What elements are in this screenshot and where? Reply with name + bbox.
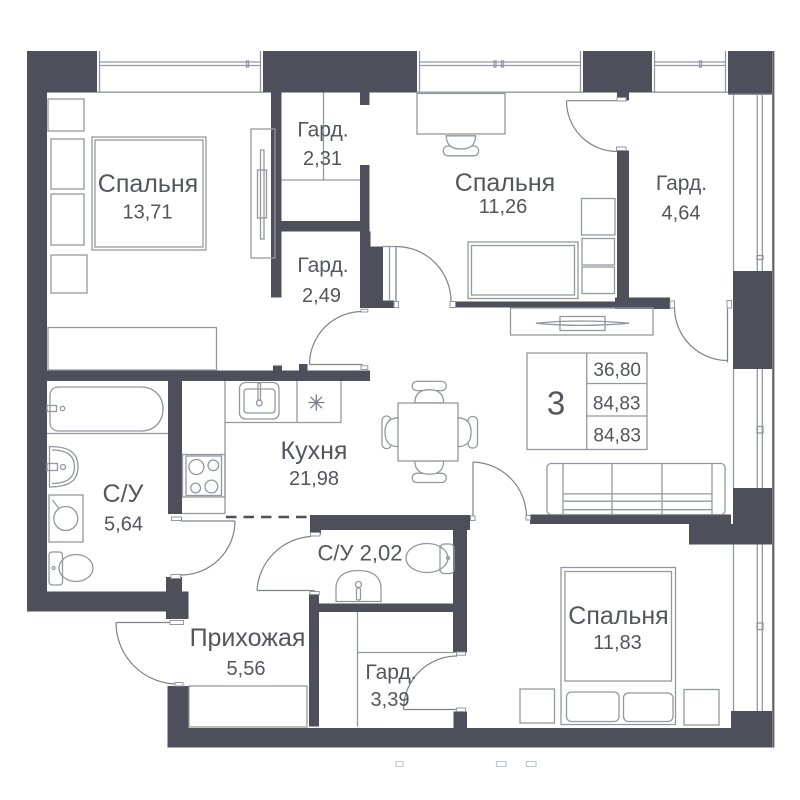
svg-text:5,56: 5,56 [227, 658, 266, 680]
svg-text:Гард.: Гард. [297, 254, 348, 277]
svg-text:С/У: С/У [103, 480, 144, 508]
svg-text:Гард.: Гард. [297, 119, 348, 142]
svg-text:3: 3 [547, 385, 565, 422]
svg-text:Гард.: Гард. [365, 661, 416, 684]
svg-text:Спальня: Спальня [98, 170, 198, 198]
svg-text:Спальня: Спальня [455, 169, 555, 197]
svg-text:2,49: 2,49 [302, 285, 341, 307]
svg-text:11,26: 11,26 [479, 196, 528, 218]
svg-text:13,71: 13,71 [122, 202, 172, 224]
svg-text:Спальня: Спальня [568, 602, 668, 630]
svg-text:Прихожая: Прихожая [190, 624, 306, 652]
svg-text:84,83: 84,83 [593, 393, 641, 414]
svg-text:11,83: 11,83 [593, 632, 642, 654]
svg-text:3,39: 3,39 [371, 689, 410, 711]
svg-text:84,83: 84,83 [593, 425, 641, 446]
svg-text:С/У 2,02: С/У 2,02 [318, 541, 403, 566]
svg-text:5,64: 5,64 [104, 514, 143, 536]
svg-text:4,64: 4,64 [662, 203, 701, 225]
svg-text:Кухня: Кухня [281, 437, 348, 465]
svg-text:36,80: 36,80 [593, 360, 641, 381]
svg-text:Гард.: Гард. [656, 172, 707, 195]
svg-text:2,31: 2,31 [303, 148, 342, 170]
svg-text:21,98: 21,98 [289, 468, 339, 490]
